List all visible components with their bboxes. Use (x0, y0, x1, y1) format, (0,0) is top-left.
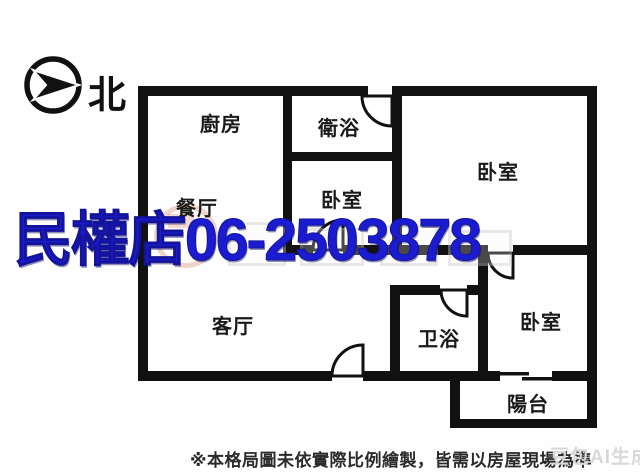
room-label-balcony: 陽台 (507, 388, 549, 417)
floor-plan-image: 北 廚房 衛浴 卧室 餐厅 卧室 客厅 卫浴 卧室 陽台 民權店06-25038… (0, 0, 640, 475)
room-label-kitchen: 廚房 (200, 108, 242, 137)
compass-north-icon (18, 50, 90, 120)
door-arc (332, 345, 363, 376)
room-label-living: 客厅 (212, 310, 254, 339)
disclaimer-text: ※本格局圖未依實際比例繪製，皆需以房屋現場為準 (190, 446, 592, 471)
door-arc (441, 290, 467, 316)
room-label-bath-bottom: 卫浴 (418, 323, 460, 352)
room-label-bath-top: 衛浴 (318, 112, 360, 141)
store-phone-watermark: 民權店06-2503878 (14, 192, 634, 277)
door-arc (362, 96, 392, 126)
room-label-bedroom-top-right: 卧室 (477, 156, 519, 185)
room-label-bedroom-bottom-right: 卧室 (520, 306, 562, 335)
sliding-door-icon (522, 377, 553, 381)
sliding-door-icon (498, 372, 529, 376)
north-label: 北 (88, 64, 126, 119)
ai-generated-watermark: 豆包AI生成 (550, 442, 640, 469)
